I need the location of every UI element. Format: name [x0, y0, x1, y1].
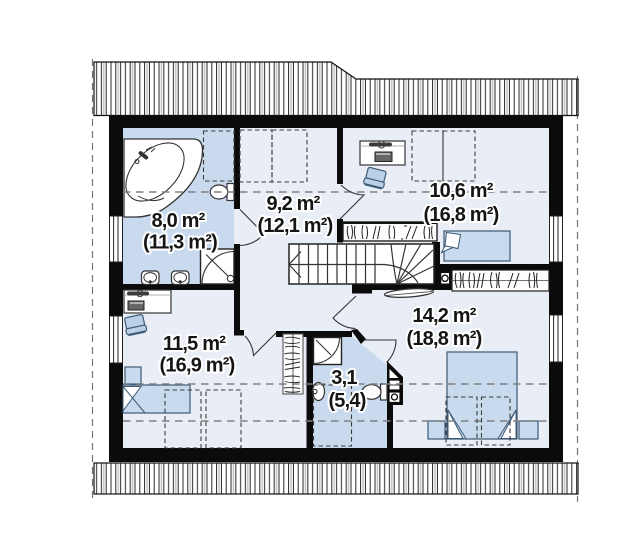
svg-text:(5,4): (5,4)	[328, 390, 365, 412]
svg-text:(16,9 m²): (16,9 m²)	[159, 355, 234, 377]
svg-text:(16,8 m²): (16,8 m²)	[423, 204, 498, 226]
svg-text:3,1: 3,1	[331, 367, 357, 389]
svg-text:(18,8 m²): (18,8 m²)	[406, 328, 481, 350]
svg-text:8,0 m²: 8,0 m²	[151, 210, 205, 232]
svg-text:(11,3 m²): (11,3 m²)	[143, 232, 217, 254]
svg-text:11,5 m²: 11,5 m²	[163, 333, 226, 355]
svg-text:10,6 m²: 10,6 m²	[429, 180, 493, 202]
svg-text:(12,1 m²): (12,1 m²)	[257, 215, 332, 237]
svg-text:14,2 m²: 14,2 m²	[412, 305, 476, 327]
svg-text:9,2 m²: 9,2 m²	[266, 193, 320, 215]
